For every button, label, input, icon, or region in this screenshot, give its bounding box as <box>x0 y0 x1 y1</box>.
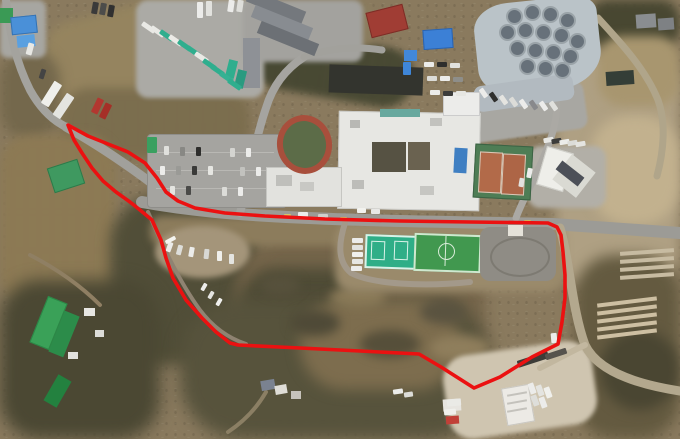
boundary-overlay <box>0 0 680 439</box>
site-boundary-outline <box>68 125 565 388</box>
satellite-aerial-image <box>0 0 680 439</box>
